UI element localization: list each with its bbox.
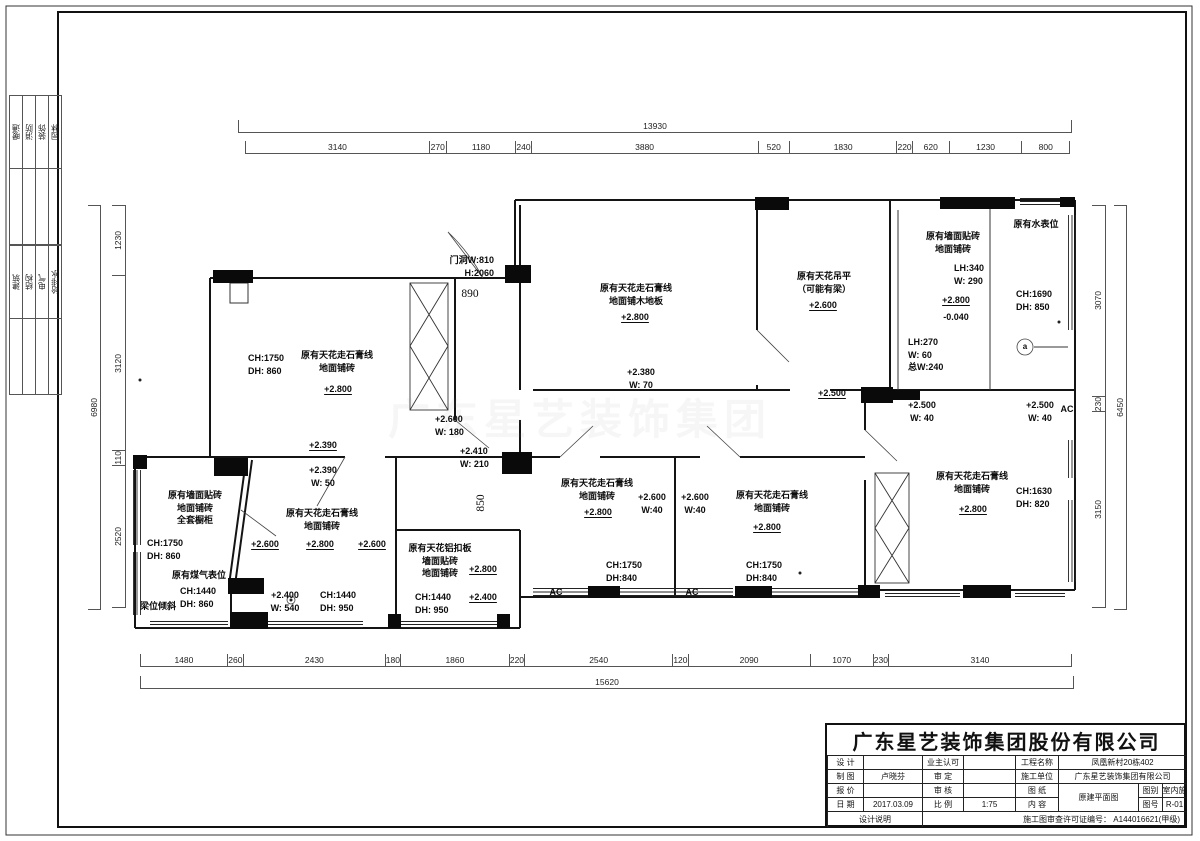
dim-chain-right: 30702303150 (1092, 205, 1106, 608)
dim-segment: 3880 (531, 141, 758, 154)
tb-number-value: R-01 (1162, 797, 1186, 811)
dim-segment: 110 (112, 450, 125, 465)
plan-label: LH:340 W: 290 (954, 262, 998, 287)
plan-label: +2.410 W: 210 (460, 445, 508, 470)
plan-label: 原有天花吊平 （可能有梁） (786, 270, 862, 295)
dim-total-top: 13930 (238, 120, 1072, 133)
plan-label: +2.600 (245, 538, 285, 551)
dim-segment: 3150 (1092, 411, 1105, 608)
plan-label: 原有墙面贴砖 地面铺砖 全套橱柜 (158, 489, 232, 527)
tb-design-label: 设 计 (827, 755, 863, 769)
tb-project-label: 工程名称 (1015, 755, 1058, 769)
dim-segment: 240 (515, 141, 530, 154)
dim-segment: 2430 (243, 654, 385, 667)
plan-label: CH:1750 DH: 860 (248, 352, 296, 377)
dim-segment: 180 (385, 654, 400, 667)
margin-cell: 暖通 (9, 95, 23, 245)
plan-label: LH:270 W: 60 总W:240 (908, 336, 958, 374)
tb-scale-value: 1:75 (963, 797, 1015, 811)
dim-segment: 1070 (810, 654, 873, 667)
plan-label: 原有天花走石膏线 地面铺砖 (278, 507, 366, 532)
plan-label: +2.400 W: 540 (261, 589, 309, 614)
plan-label: +2.500 (810, 387, 854, 400)
dim-segment: 1180 (446, 141, 516, 154)
tb-price-value (863, 783, 922, 797)
margin-table-arch: 建筑结构电气给排水 (10, 245, 62, 395)
dim-total-left: 6980 (88, 205, 101, 610)
dim-segment: 270 (429, 141, 446, 154)
dim-segment: 120 (672, 654, 687, 667)
plan-label: CH:1750 DH: 860 (147, 537, 195, 562)
tb-drafter-value: 卢晓芬 (863, 769, 922, 783)
dim-segment: 1480 (140, 654, 227, 667)
margin-cell: 给排水 (48, 245, 62, 395)
dim-chain-left: 123031201102520 (112, 205, 126, 608)
plan-label: CH:1440 DH: 860 (180, 585, 228, 610)
plan-label: +2.800 (950, 503, 996, 516)
tb-notes-label: 设计说明 (827, 811, 922, 827)
plan-label: -0.040 (933, 311, 979, 324)
tb-contractor-value: 广东星艺装饰集团有限公司 (1058, 769, 1186, 783)
plan-label: 原有墙面贴砖 地面铺砖 (918, 230, 988, 255)
dim-segment: 220 (896, 141, 911, 154)
plan-label: +2.390 (300, 439, 346, 452)
dim-segment: 3120 (112, 275, 125, 451)
plan-label: +2.600 (800, 299, 846, 312)
tb-category-label: 图别 (1138, 783, 1162, 797)
margin-cell: 结构 (22, 245, 36, 395)
tb-owner-value (963, 755, 1015, 769)
plan-label: +2.800 (315, 383, 361, 396)
plan-label: AC (1056, 403, 1078, 416)
plan-label: AC (546, 586, 566, 599)
plan-label: a (1017, 341, 1033, 352)
tb-permit: 施工图审查许可证编号： A144016621(甲级) (922, 811, 1186, 827)
plan-label: 原有天花走石膏线 地面铺木地板 (588, 282, 684, 307)
dim-segment: 3140 (245, 141, 429, 154)
plan-label: +2.500 W: 40 (898, 399, 946, 424)
tb-content-label: 内 容 (1015, 797, 1058, 811)
plan-label: 原有天花走石膏线 地面铺砖 (928, 470, 1016, 495)
tb-date-label: 日 期 (827, 797, 863, 811)
tb-project-value: 凤凰新村20栋402 (1058, 755, 1186, 769)
tb-price-label: 报 价 (827, 783, 863, 797)
tb-content-value: 原建平面图 (1058, 783, 1138, 811)
plan-label: +2.800 (612, 311, 658, 324)
margin-cell: 园林 (48, 95, 62, 245)
dim-chain-top: 31402701180240388052018302206201230800 (245, 141, 1070, 154)
tb-check-label: 审 核 (922, 783, 963, 797)
plan-label: 梁位倾斜 (135, 600, 181, 613)
tb-number-label: 图号 (1138, 797, 1162, 811)
plan-label: CH:1690 DH: 850 (1016, 288, 1064, 313)
dim-segment: 2540 (524, 654, 672, 667)
dim-segment: 220 (509, 654, 524, 667)
tb-category-value: 室内施 (1162, 783, 1186, 797)
plan-label: CH:1440 DH: 950 (320, 589, 368, 614)
plan-label: 原有天花走石膏线 地面铺砖 (293, 349, 381, 374)
margin-cell: 电气 (35, 245, 49, 395)
plan-label: +2.800 (461, 563, 505, 576)
company-name: 广东星艺装饰集团股份有限公司 (827, 725, 1186, 755)
dim-segment: 1860 (400, 654, 509, 667)
plan-label: +2.600 W: 180 (435, 413, 483, 438)
plan-label: +2.390 W: 50 (298, 464, 348, 489)
tb-draw-label: 制 图 (827, 769, 863, 783)
plan-label: +2.800 (300, 538, 340, 551)
plan-label: CH:1750 DH:840 (606, 559, 652, 584)
plan-label: 门洞W:810 H:2060 (438, 254, 494, 279)
tb-date-value: 2017.03.09 (863, 797, 922, 811)
dim-segment: 620 (912, 141, 949, 154)
plan-label: 原有水表位 (1006, 218, 1066, 231)
dim-segment: 1230 (112, 205, 125, 275)
tb-check-value (963, 783, 1015, 797)
margin-cell: 消防 (22, 95, 36, 245)
tb-verify-label: 审 定 (922, 769, 963, 783)
plan-label: +2.400 (461, 591, 505, 604)
dim-segment: 520 (758, 141, 789, 154)
tb-scale-label: 比 例 (922, 797, 963, 811)
dim-segment: 3140 (888, 654, 1072, 667)
tb-verify-value (963, 769, 1015, 783)
plan-label: CH:1750 DH:840 (746, 559, 792, 584)
plan-label: 原有天花走石膏线 地面铺砖 (553, 477, 641, 502)
plan-label: 850 (473, 488, 489, 518)
dim-chain-bottom: 1480260243018018602202540120209010702303… (140, 654, 1072, 667)
dim-segment: 2090 (688, 654, 810, 667)
plan-label: +2.600 W:40 (676, 491, 714, 516)
plan-label: +2.380 W: 70 (616, 366, 666, 391)
dim-segment: 2520 (112, 465, 125, 608)
dim-segment: 230 (1092, 396, 1105, 411)
dim-total-right: 6450 (1114, 205, 1127, 610)
plan-label: +2.800 (933, 294, 979, 307)
margin-table-mep: 暖通消防装饰园林 (10, 95, 62, 245)
plan-label: 原有煤气表位 (164, 569, 234, 582)
plan-label: +2.600 (352, 538, 392, 551)
plan-label: CH:1440 DH: 950 (415, 591, 463, 616)
dim-segment: 800 (1021, 141, 1070, 154)
plan-label: AC (682, 586, 702, 599)
plan-label: CH:1630 DH: 820 (1016, 485, 1064, 510)
margin-cell: 建筑 (9, 245, 23, 395)
drawing-sheet: 广东星艺装饰集团 暖通消防装饰园林 建筑结构电气给排水 13930 314027… (0, 0, 1200, 841)
tb-sheet-label: 图 纸 (1015, 783, 1058, 797)
dim-total-bottom: 15620 (140, 676, 1074, 689)
plan-label: 890 (450, 286, 490, 302)
tb-contractor-label: 施工单位 (1015, 769, 1058, 783)
plan-label: +2.600 W:40 (633, 491, 671, 516)
title-block: 广东星艺装饰集团股份有限公司 设 计 业主认可 工程名称 凤凰新村20栋402 … (825, 723, 1186, 827)
plan-label: +2.800 (575, 506, 621, 519)
tb-design-value (863, 755, 922, 769)
dim-segment: 1230 (949, 141, 1022, 154)
dim-segment: 1830 (789, 141, 897, 154)
dim-segment: 3070 (1092, 205, 1105, 396)
plan-label: +2.800 (744, 521, 790, 534)
dim-segment: 230 (873, 654, 888, 667)
margin-cell: 装饰 (35, 95, 49, 245)
dim-segment: 260 (227, 654, 243, 667)
plan-label: 原有天花走石膏线 地面铺砖 (728, 489, 816, 514)
tb-owner-label: 业主认可 (922, 755, 963, 769)
